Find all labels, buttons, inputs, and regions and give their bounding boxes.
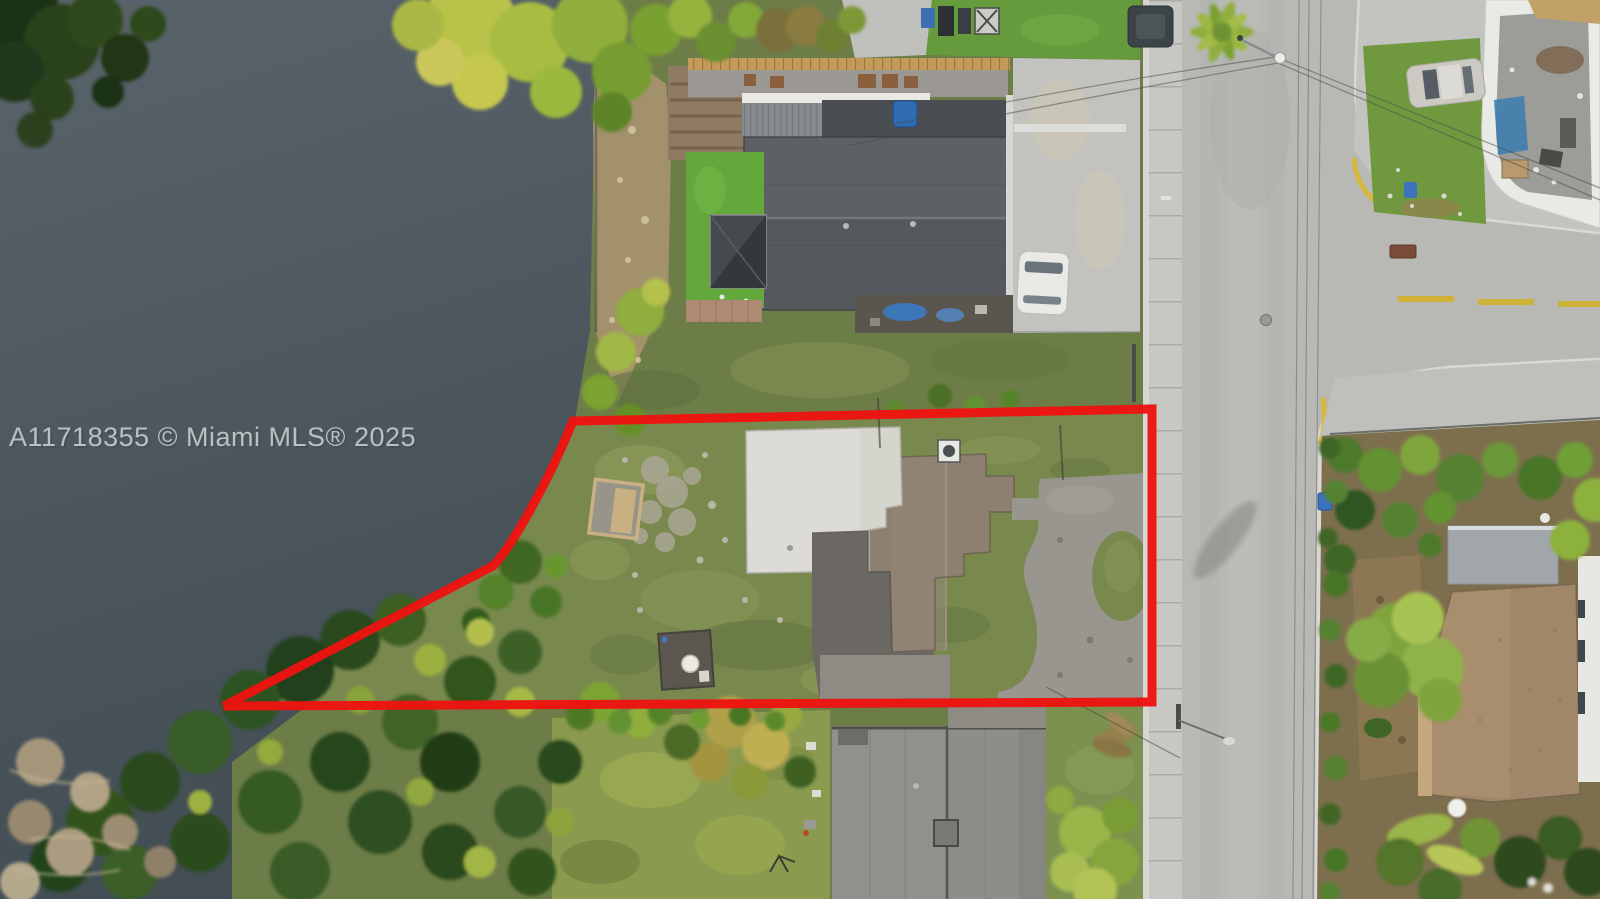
bottom-roof-east-shade — [1020, 726, 1046, 899]
debris-brown — [1536, 46, 1584, 74]
lawn-light-2 — [695, 815, 785, 875]
lawn-patch — [1020, 14, 1100, 46]
grass-strip-2 — [930, 338, 1070, 382]
street-lamp-top — [1275, 53, 1286, 64]
suv-roof — [1136, 14, 1165, 39]
driveway-stub — [1012, 498, 1044, 520]
metal-roof-ribs — [742, 103, 822, 137]
eave-item — [838, 729, 868, 745]
junk-2 — [870, 318, 880, 326]
silver-sedan — [1406, 58, 1487, 109]
turf-light — [694, 166, 726, 214]
white-dot — [1540, 513, 1550, 523]
white-sedan — [1016, 251, 1069, 316]
top-house — [742, 93, 1014, 310]
turf-yard — [686, 152, 766, 322]
grass-strip — [730, 342, 910, 398]
junk — [975, 305, 987, 314]
utility-pole-mid — [1132, 344, 1136, 402]
grass-worn — [1400, 198, 1460, 218]
paver-patio — [688, 70, 1008, 97]
roof-vent-bottom — [913, 783, 919, 789]
roof-vent — [843, 223, 849, 229]
ac-unit — [938, 440, 960, 462]
red-item — [803, 830, 809, 836]
black-bin — [938, 6, 954, 36]
white-box — [699, 670, 710, 682]
east-wall — [1006, 95, 1014, 310]
mls-watermark: A11718355 © Miami MLS® 2025 A11718355 © … — [9, 422, 418, 454]
blue-tarp — [883, 303, 927, 321]
utility-shed — [658, 630, 714, 689]
light-pole-bottom — [1176, 704, 1181, 729]
south-drive-stub — [820, 655, 950, 703]
blue-item — [921, 8, 935, 28]
debris-dark-2 — [1560, 118, 1576, 148]
roof-north-slope — [744, 137, 1012, 218]
pallet — [1502, 160, 1528, 178]
blue-tarp-2 — [936, 308, 964, 322]
carport-storage — [855, 295, 1033, 333]
island-mottle — [1104, 540, 1140, 592]
lawn-light — [600, 752, 700, 808]
parking-bumper — [1014, 124, 1126, 132]
bottom-driveway — [948, 704, 1046, 728]
paint-mark — [1161, 196, 1171, 200]
east-white-building — [1578, 556, 1600, 782]
roof-drain — [787, 545, 793, 551]
driveway-sand — [1045, 485, 1115, 515]
manhole — [1261, 315, 1272, 326]
storm-drain — [1390, 245, 1416, 258]
aerial-photo: A11718355 © Miami MLS® 2025 A11718355 © … — [0, 0, 1600, 899]
wood-platform — [589, 479, 643, 538]
paver-walk — [686, 300, 762, 322]
small-shed — [710, 215, 766, 288]
chair — [720, 295, 725, 300]
grass-tuft — [1364, 718, 1392, 738]
parking-pad — [1013, 58, 1140, 333]
bottom-roof-west — [832, 726, 947, 899]
northeast-corner — [1354, 0, 1600, 232]
sand-patch-2 — [1075, 170, 1125, 270]
blue-boat-tarp — [1494, 96, 1528, 155]
roof-vent-2 — [910, 221, 916, 227]
street-lamp-bottom — [1223, 737, 1235, 745]
lawn-dark — [560, 840, 640, 884]
east-building-windows — [1578, 600, 1585, 714]
watermark-text: A11718355 © Miami MLS® 2025 — [9, 422, 416, 452]
satellite-dish — [1448, 799, 1466, 817]
blue-barrel-ne — [1404, 182, 1417, 198]
ac-fan-unit — [975, 8, 999, 34]
pole-top — [1237, 35, 1243, 41]
chimney — [934, 820, 958, 846]
satellite-dish-shed — [681, 655, 699, 673]
fence-boards — [688, 58, 1010, 70]
black-bin-2 — [958, 8, 971, 34]
bottom-house — [832, 726, 1046, 899]
